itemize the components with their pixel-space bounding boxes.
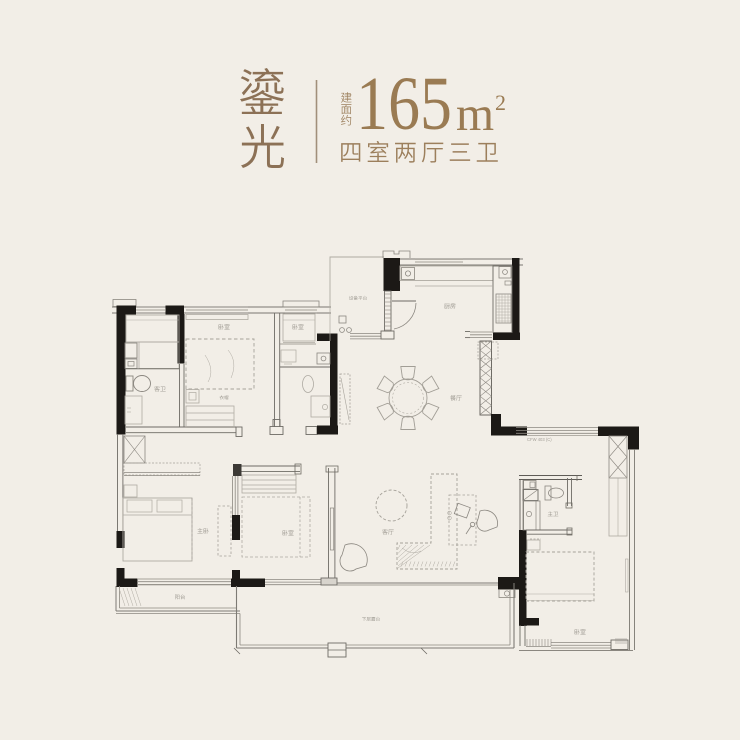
svg-text:CFW 403 (C): CFW 403 (C) [527,437,552,442]
svg-text:m: m [456,86,494,141]
svg-text:165: 165 [356,62,452,146]
svg-text:2: 2 [495,90,506,115]
